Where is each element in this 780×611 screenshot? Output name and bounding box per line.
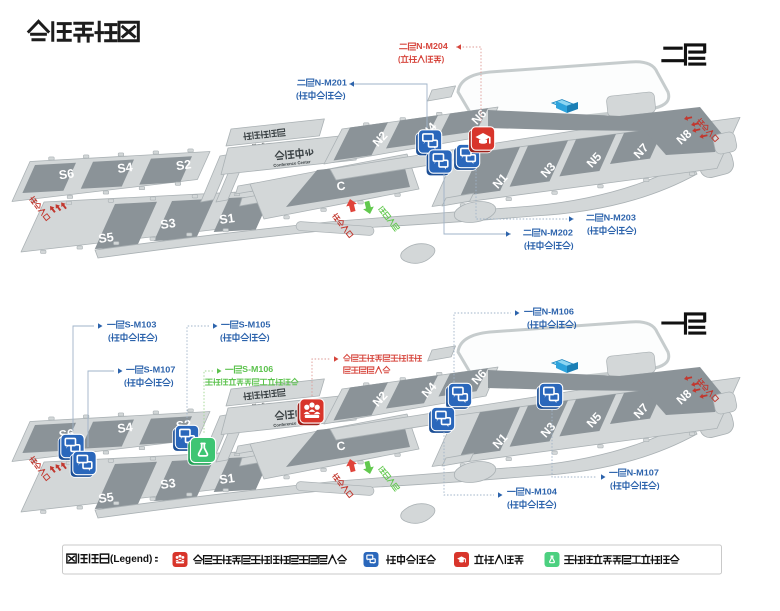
svg-text:): ) <box>554 499 557 509</box>
svg-text:S-M103: S-M103 <box>125 319 157 329</box>
svg-text:N-M107: N-M107 <box>627 467 660 477</box>
svg-text:): ) <box>442 55 445 64</box>
svg-text:(: ( <box>398 55 401 64</box>
svg-text:(Legend): (Legend) <box>110 554 152 565</box>
svg-text:(: ( <box>220 332 223 342</box>
svg-text:): ) <box>171 377 174 387</box>
svg-text:): ) <box>657 480 660 490</box>
svg-text:N-M106: N-M106 <box>542 306 575 316</box>
svg-text:): ) <box>155 332 158 342</box>
svg-text:(: ( <box>527 319 530 329</box>
svg-text:(: ( <box>296 90 299 100</box>
svg-text:(: ( <box>610 480 613 490</box>
svg-text:N-M204: N-M204 <box>416 42 448 51</box>
svg-text:N-M104: N-M104 <box>525 486 558 496</box>
svg-text:): ) <box>574 319 577 329</box>
svg-text:N-M201: N-M201 <box>315 77 348 87</box>
svg-text:): ) <box>267 332 270 342</box>
svg-text:): ) <box>571 240 574 250</box>
svg-text:(: ( <box>507 499 510 509</box>
svg-text:): ) <box>634 225 637 235</box>
svg-text:(: ( <box>124 377 127 387</box>
svg-text:(: ( <box>108 332 111 342</box>
svg-text:S-M105: S-M105 <box>239 319 271 329</box>
svg-text:S-M107: S-M107 <box>144 364 176 374</box>
svg-text:(: ( <box>587 225 590 235</box>
svg-text:N-M203: N-M203 <box>604 212 637 222</box>
svg-text:(: ( <box>524 240 527 250</box>
svg-text:S-M106: S-M106 <box>242 365 273 374</box>
svg-text:N-M202: N-M202 <box>541 227 574 237</box>
svg-text:): ) <box>343 90 346 100</box>
